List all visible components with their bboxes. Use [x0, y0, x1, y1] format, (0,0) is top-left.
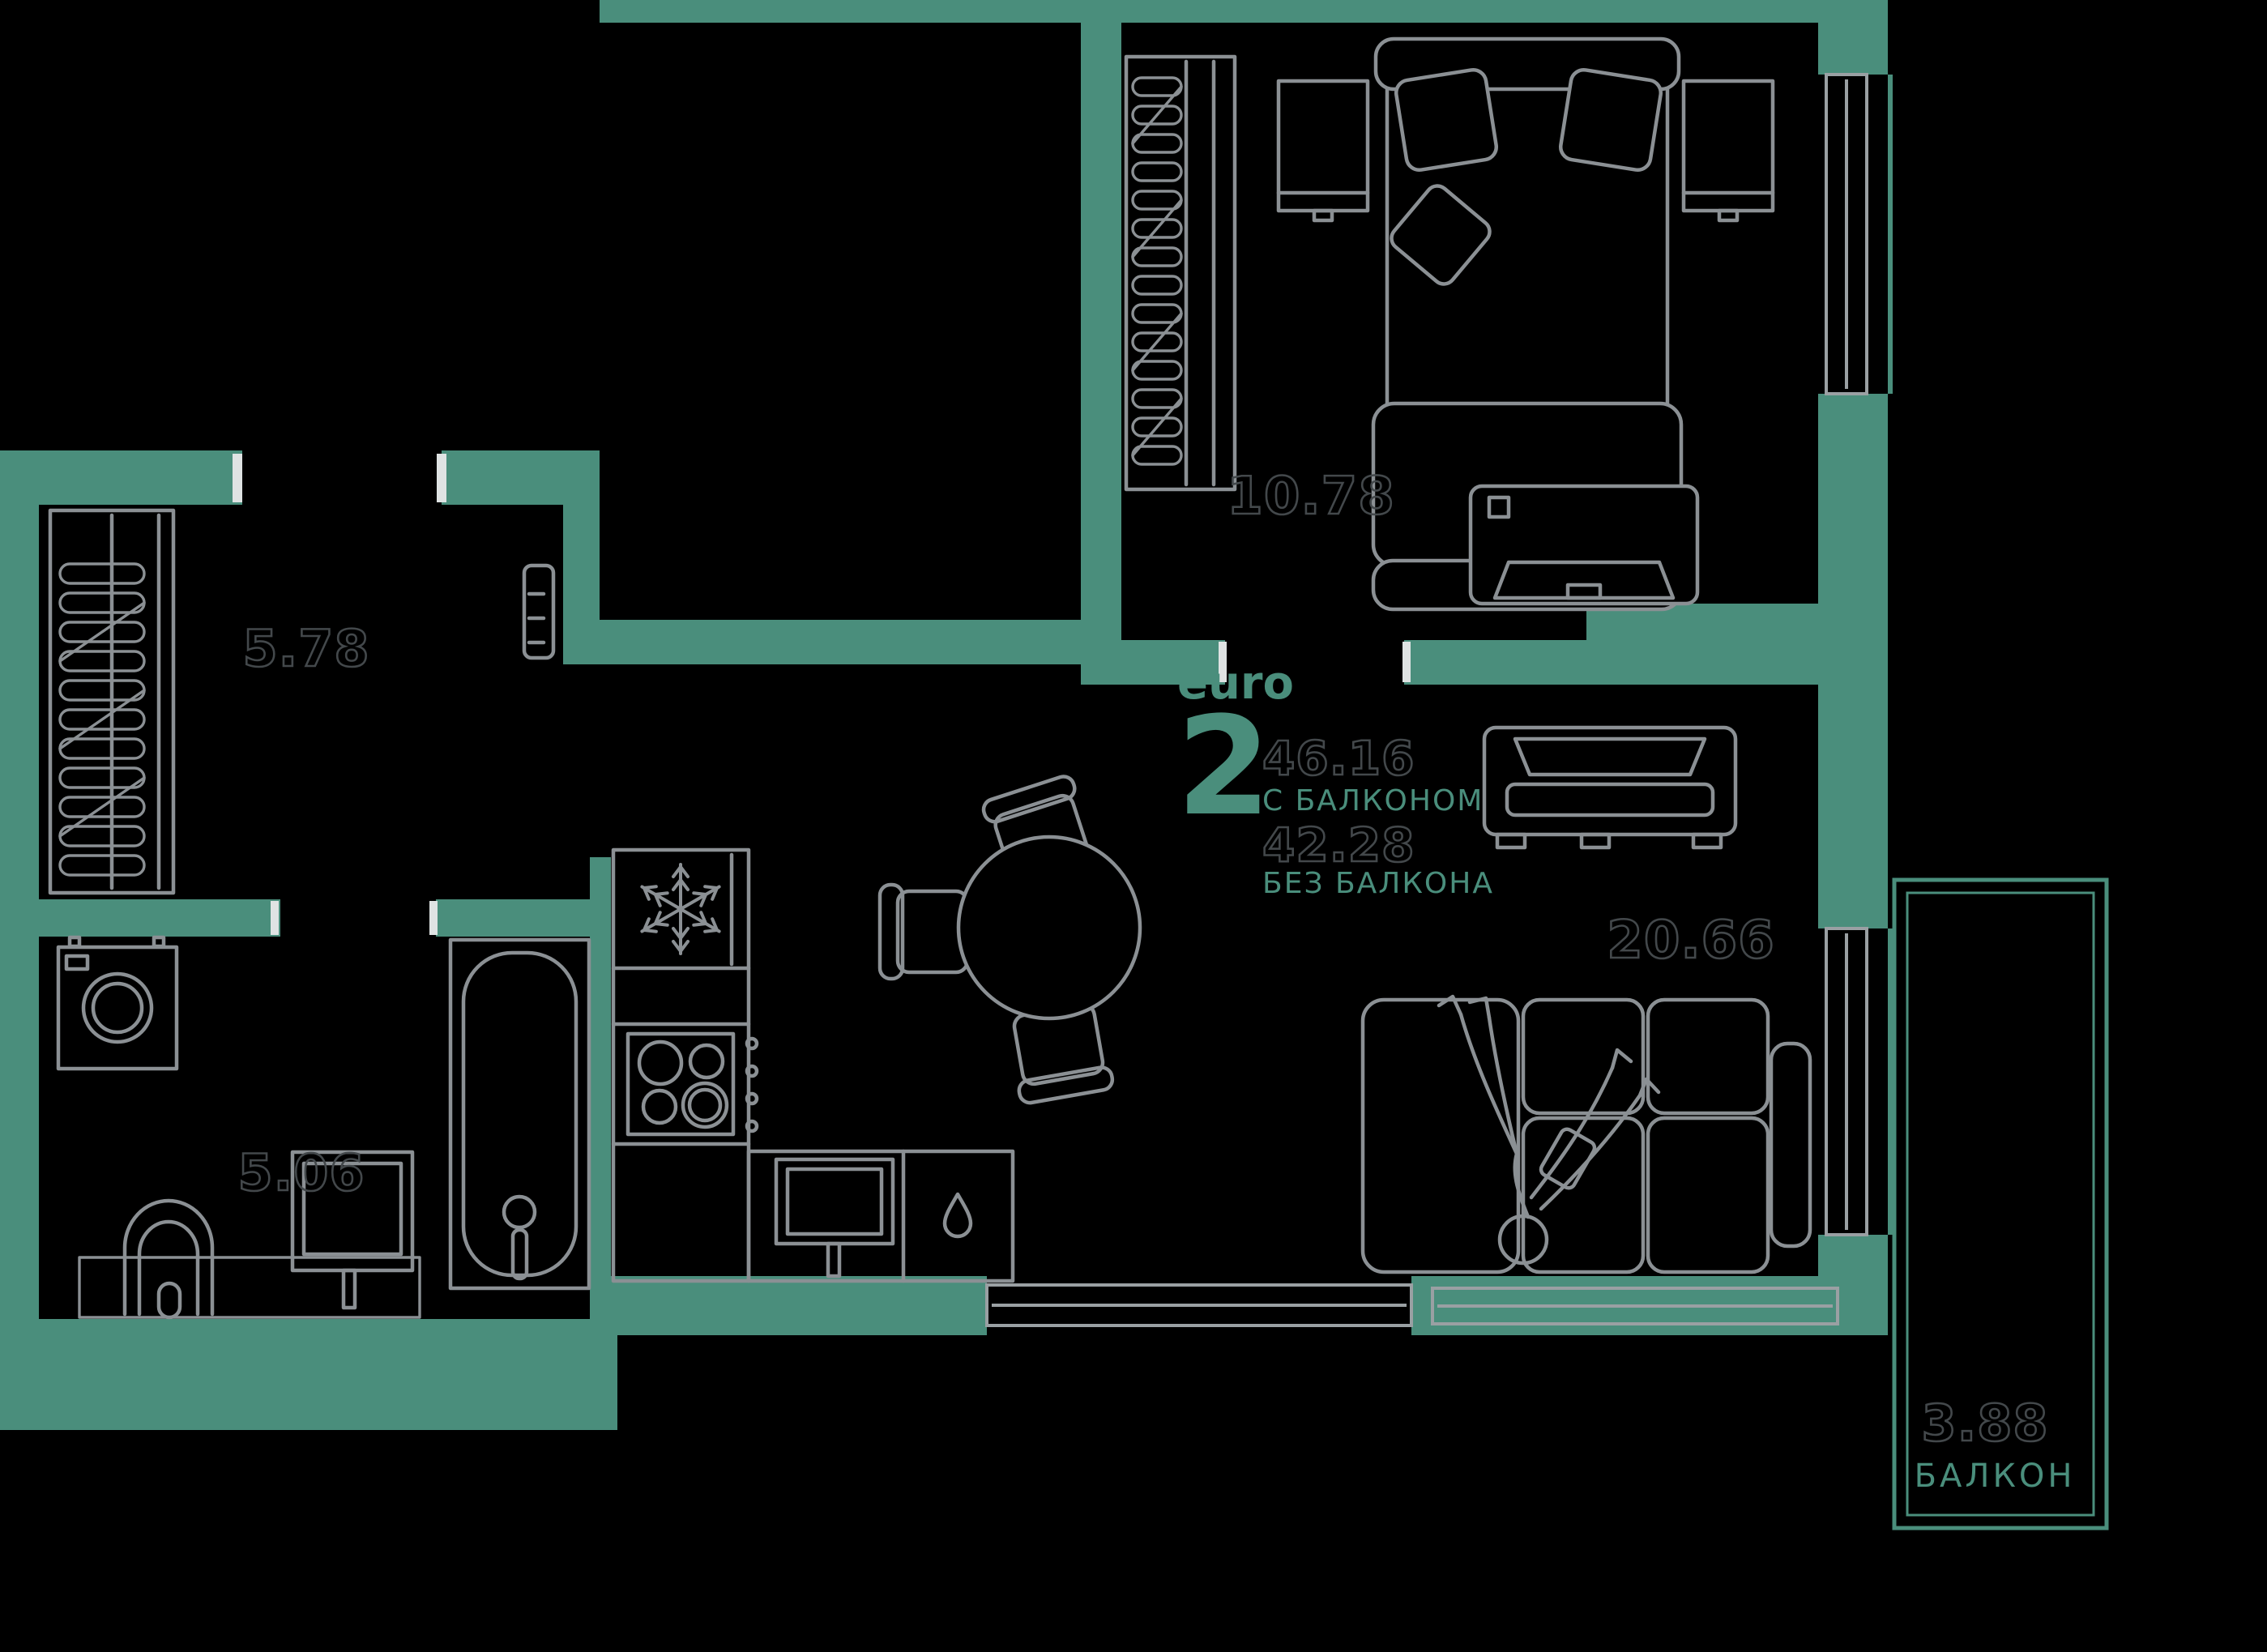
wall-left: [0, 450, 39, 1430]
wall-bath-top-a: [32, 899, 280, 937]
dining-set: [880, 774, 1140, 1104]
pillow: [1394, 68, 1498, 172]
electrical-panel: [524, 566, 553, 658]
bathtub: [450, 940, 589, 1288]
legend-without-balcony-label: БЕЗ БАЛКОНА: [1262, 867, 1494, 900]
bathroom-area-label: 5.06: [238, 1143, 365, 1202]
legend-area-without-balcony: 42.28: [1262, 817, 1415, 873]
wall-window-edge-top: [1888, 75, 1893, 394]
hall-wardrobe: [50, 510, 173, 893]
plan-legend: euro 2 46.16 С БАЛКОНОМ 42.28 БЕЗ БАЛКОН…: [1176, 657, 1494, 900]
bedroom-area-label: 10.78: [1227, 467, 1394, 527]
living-kitchen-area-label: 20.66: [1607, 911, 1774, 971]
wall-window-edge-bottom: [1888, 928, 1893, 1235]
balcony-name-label: БАЛКОН: [1915, 1458, 2076, 1495]
pillow: [1559, 68, 1663, 172]
bathroom-door-jamb-left: [271, 901, 279, 935]
window-kitchen-bottom: [987, 1285, 1411, 1325]
nightstand-right: [1684, 81, 1773, 220]
snowflake-icon: [638, 864, 723, 954]
wall-void-bottom: [563, 620, 1081, 664]
wall-bath-top-b: [436, 899, 590, 937]
wall-bedroom-bottom-corner: [1586, 604, 1888, 685]
balcony-area-label: 3.88: [1922, 1394, 2049, 1453]
kitchen-sink: [776, 1159, 893, 1276]
bedroom-door-jamb-right: [1402, 642, 1411, 682]
tv-dresser-bedroom: [1471, 486, 1697, 604]
wall-bedroom-left: [1081, 0, 1121, 685]
toilet: [125, 1201, 212, 1317]
window-living-right: [1826, 928, 1867, 1235]
wall-top: [600, 0, 1888, 23]
stove: [628, 1034, 757, 1134]
wall-bath-bottom: [0, 1319, 617, 1430]
person-on-sofa: [1439, 997, 1659, 1263]
legend-with-balcony-label: С БАЛКОНОМ: [1262, 784, 1484, 817]
window-bedroom-right: [1826, 75, 1867, 394]
entry-door-jamb-right: [437, 454, 446, 502]
wall-hall-right: [563, 450, 600, 654]
wall-kitchen-bottom: [600, 1276, 987, 1335]
wall-kitchen-divider: [590, 857, 611, 1319]
floor-plan-svg: 5.78 10.78 5.06 20.66 3.88 БАЛКОН euro 2…: [0, 0, 2267, 1652]
pillow-small: [1387, 181, 1494, 288]
bathroom-door-jamb-right: [429, 901, 438, 935]
dining-chair: [880, 885, 967, 979]
bath-counter: [79, 1257, 420, 1317]
kitchen-furniture: [613, 850, 1013, 1281]
dining-table: [958, 837, 1140, 1018]
bedroom-furniture: [1126, 39, 1773, 609]
wall-top-right-block: [1818, 23, 1888, 75]
legend-area-with-balcony: 46.16: [1262, 731, 1415, 786]
water-drop-icon: [945, 1194, 971, 1236]
sofa: [1363, 1000, 1810, 1272]
hallway-furniture: [50, 510, 553, 893]
bedroom-wardrobe: [1126, 57, 1235, 489]
nightstand-left: [1279, 81, 1368, 220]
floor-plan-page: 5.78 10.78 5.06 20.66 3.88 БАЛКОН euro 2…: [0, 0, 2267, 1652]
hallway-area-label: 5.78: [243, 619, 370, 678]
entry-door-jamb-left: [233, 454, 242, 502]
legend-rooms-count: 2: [1176, 687, 1271, 846]
washing-machine: [58, 937, 177, 1069]
tv-console-living: [1484, 728, 1735, 847]
bathroom-furniture: [58, 937, 589, 1317]
